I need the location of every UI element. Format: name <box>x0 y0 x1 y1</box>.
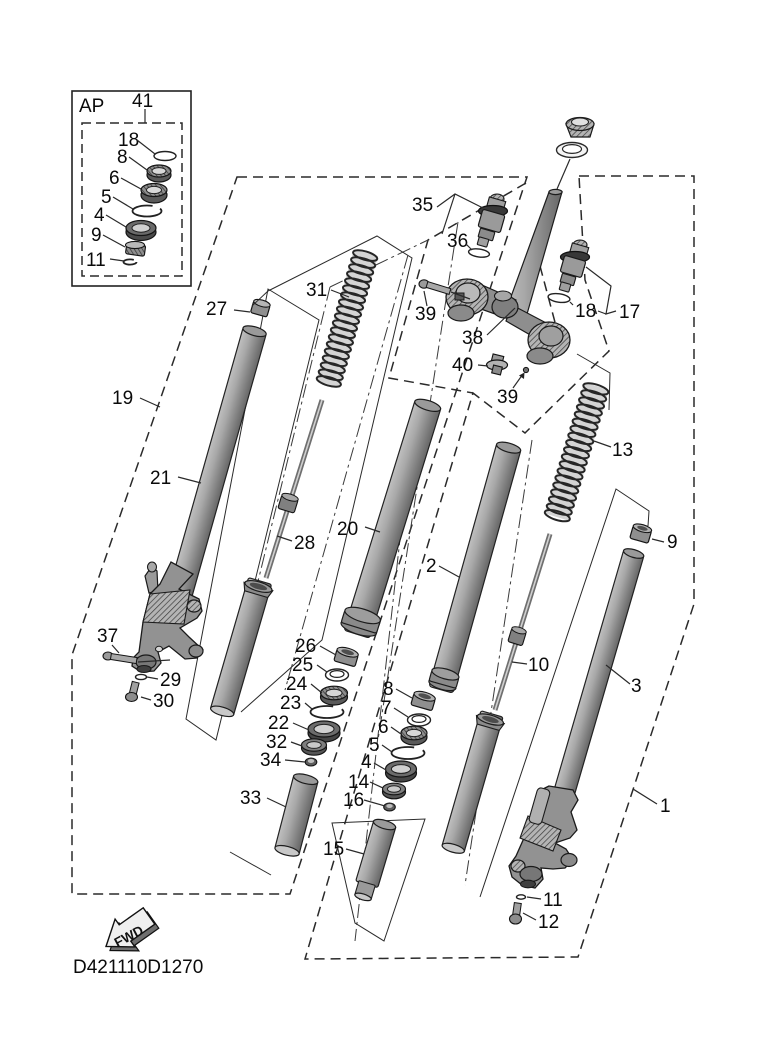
svg-text:1: 1 <box>660 796 671 817</box>
svg-text:36: 36 <box>447 231 468 252</box>
svg-text:16: 16 <box>343 790 364 811</box>
svg-text:9: 9 <box>667 532 678 553</box>
svg-text:39: 39 <box>415 304 436 325</box>
svg-text:37: 37 <box>97 626 118 647</box>
svg-text:28: 28 <box>294 533 315 554</box>
svg-text:13: 13 <box>612 440 633 461</box>
svg-text:9: 9 <box>91 225 102 246</box>
svg-text:8: 8 <box>383 679 394 700</box>
svg-text:38: 38 <box>462 328 483 349</box>
svg-text:34: 34 <box>260 750 282 771</box>
svg-text:11: 11 <box>86 250 106 271</box>
svg-text:22: 22 <box>268 713 289 734</box>
svg-text:39: 39 <box>497 387 518 408</box>
svg-text:31: 31 <box>306 280 327 301</box>
svg-text:7: 7 <box>381 698 392 719</box>
svg-text:4: 4 <box>94 205 105 226</box>
svg-text:11: 11 <box>543 890 563 911</box>
svg-text:19: 19 <box>112 388 133 409</box>
svg-text:D421110D1270: D421110D1270 <box>73 957 203 978</box>
svg-text:6: 6 <box>378 717 389 738</box>
svg-text:20: 20 <box>337 519 358 540</box>
svg-text:23: 23 <box>280 693 301 714</box>
svg-text:15: 15 <box>323 839 344 860</box>
svg-text:35: 35 <box>412 195 433 216</box>
svg-text:29: 29 <box>160 670 181 691</box>
svg-text:2: 2 <box>426 556 437 577</box>
svg-text:41: 41 <box>132 91 153 112</box>
svg-text:17: 17 <box>619 302 640 323</box>
svg-text:AP: AP <box>79 96 104 117</box>
svg-text:40: 40 <box>452 355 473 376</box>
svg-text:24: 24 <box>286 674 308 695</box>
svg-text:25: 25 <box>292 655 313 676</box>
svg-text:27: 27 <box>206 299 227 320</box>
svg-text:6: 6 <box>109 168 120 189</box>
svg-text:33: 33 <box>240 788 261 809</box>
svg-text:21: 21 <box>150 468 171 489</box>
svg-text:4: 4 <box>361 752 372 773</box>
svg-text:12: 12 <box>538 912 559 933</box>
svg-text:26: 26 <box>295 636 316 657</box>
svg-text:30: 30 <box>153 691 174 712</box>
svg-text:10: 10 <box>528 655 549 676</box>
svg-text:18: 18 <box>575 301 596 322</box>
svg-text:8: 8 <box>117 147 128 168</box>
svg-text:3: 3 <box>631 676 642 697</box>
